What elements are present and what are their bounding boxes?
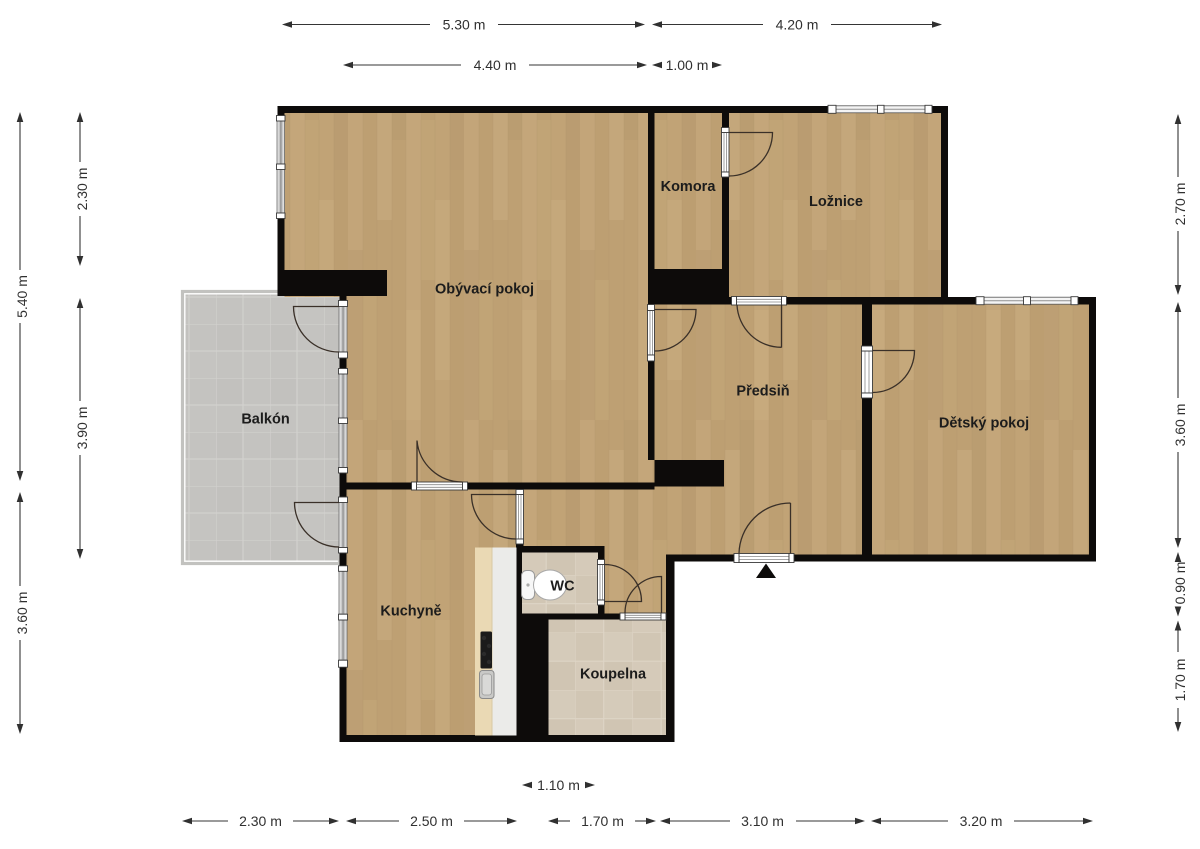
svg-text:Koupelna: Koupelna [580,667,647,683]
svg-text:1.70 m: 1.70 m [1172,659,1188,702]
svg-text:3.20 m: 3.20 m [960,813,1003,829]
svg-text:1.70 m: 1.70 m [581,813,624,829]
svg-text:5.30 m: 5.30 m [443,17,486,33]
svg-text:Kuchyně: Kuchyně [380,604,441,620]
svg-text:1.00 m: 1.00 m [666,57,709,73]
svg-text:Předsiň: Předsiň [736,384,789,400]
svg-text:Obývací pokoj: Obývací pokoj [435,282,534,298]
svg-text:1.10 m: 1.10 m [537,777,580,793]
svg-text:4.20 m: 4.20 m [776,17,819,33]
svg-text:3.90 m: 3.90 m [74,407,90,450]
svg-text:Ložnice: Ložnice [809,194,863,210]
svg-text:3.60 m: 3.60 m [14,592,30,635]
svg-text:3.60 m: 3.60 m [1172,404,1188,447]
svg-text:2.30 m: 2.30 m [239,813,282,829]
svg-text:2.30 m: 2.30 m [74,168,90,211]
svg-text:5.40 m: 5.40 m [14,275,30,318]
svg-text:0.90 m: 0.90 m [1172,562,1188,605]
svg-text:WC: WC [550,579,575,595]
svg-text:4.40 m: 4.40 m [474,57,517,73]
svg-text:Komora: Komora [661,179,717,195]
svg-text:2.70 m: 2.70 m [1172,183,1188,226]
svg-text:2.50 m: 2.50 m [410,813,453,829]
svg-text:Dětský pokoj: Dětský pokoj [939,416,1029,432]
svg-text:3.10 m: 3.10 m [741,813,784,829]
svg-text:Balkón: Balkón [241,412,289,428]
